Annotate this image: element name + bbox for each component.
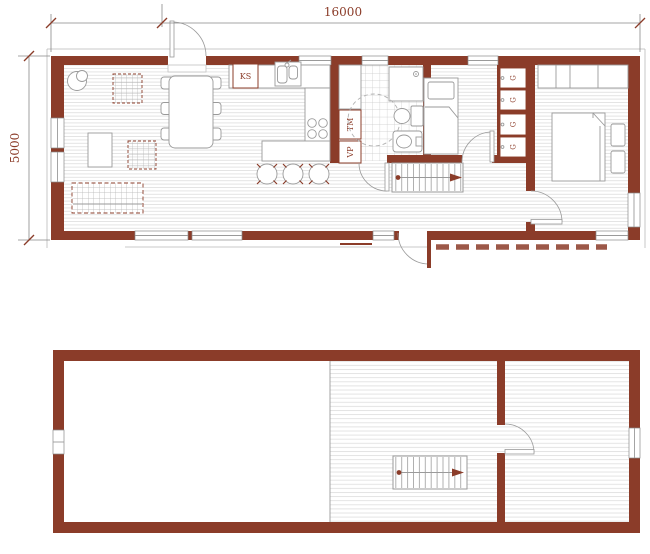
window [596,231,628,240]
bathroom-cabinet [339,65,361,109]
window [299,56,331,65]
wardrobe-label: G [510,97,518,103]
floor-plan-drawing: KS [0,0,650,554]
window [362,56,388,65]
bathroom-sink [393,131,422,152]
washing-machine-label: TM [346,118,355,132]
window [629,428,640,458]
window [51,118,64,148]
first-floor-plan: KS [8,4,645,268]
width-dimension-label: 16000 [324,5,362,19]
double-bed [552,113,605,181]
window [373,231,394,240]
washing-machine-box: TM [339,110,361,139]
wardrobe-label: G [510,75,518,81]
window [192,231,242,240]
entrance-door [398,231,431,268]
sofa [72,183,143,213]
shower [389,67,423,101]
nightstand [611,124,625,146]
loft-floor-hatch [330,361,629,522]
water-heater-label: VP [346,146,355,159]
door-leaf [490,131,494,162]
terrace-door [168,21,206,72]
kitchen-island [262,141,330,161]
bar-stools [257,164,329,184]
door-threshold [168,65,206,72]
bar-stool [257,164,277,184]
door-leaf [505,450,534,455]
dining-set [161,76,221,148]
plant [68,71,88,91]
width-dimension: 16000 [46,4,645,52]
water-heater-box: VP [339,141,361,163]
dining-table [169,76,213,148]
single-bed [424,78,458,154]
wardrobe-cabinet: G [500,68,526,88]
entrance-deck-hatch [340,244,607,247]
height-dimension-label: 5000 [8,133,22,164]
small-bedroom [424,78,458,154]
fridge-box: KS [233,64,258,88]
door-leaf [531,220,562,225]
floor-plan-sheet: KS [0,0,650,554]
window [135,231,188,240]
wardrobe-cabinet: G [500,114,526,135]
wardrobe-cabinet: G [500,90,526,110]
stairs-first-floor [392,163,463,192]
window [51,152,64,182]
wardrobe-label: G [510,121,518,127]
bar-stool [283,164,303,184]
door-leaf [385,163,389,191]
door-leaf [170,21,174,57]
second-floor-plan [53,350,640,533]
stair-start-dot [397,470,402,475]
armchair [128,141,156,169]
kitchen-sink [275,60,301,86]
fridge-label: KS [240,72,251,81]
wardrobe-label: G [510,144,518,150]
coffee-table [88,133,112,167]
window [468,56,498,65]
closet [538,65,628,88]
wardrobe-cabinet: G [500,137,526,157]
armchair [113,74,142,103]
window [628,193,640,227]
nightstand [611,151,625,173]
window [53,430,64,454]
stair-start-dot [396,175,401,180]
bar-stool [309,164,329,184]
height-dimension: 5000 [8,51,50,245]
door-leaf [427,231,431,268]
stairs-second-floor [393,456,467,489]
